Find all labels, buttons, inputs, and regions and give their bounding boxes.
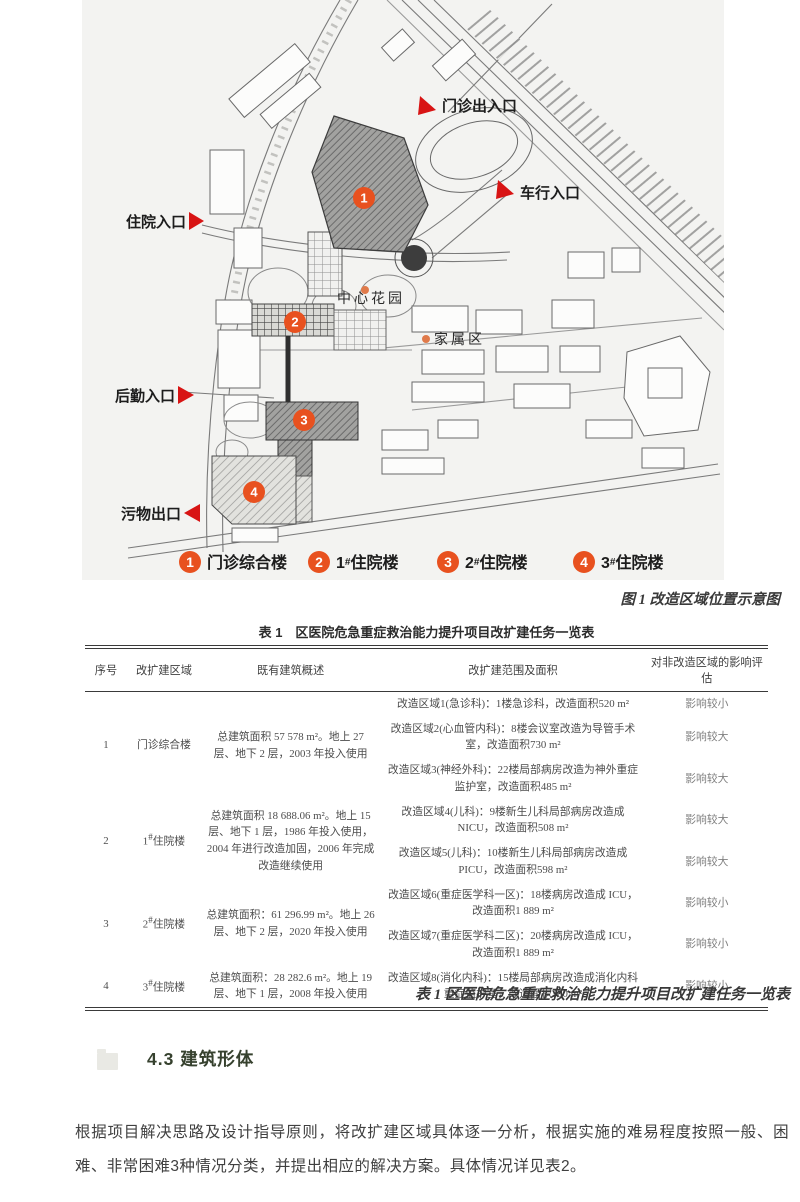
table-header-row: 序号 改扩建区域 既有建筑概述 改扩建范围及面积 对非改造区域的影响评估: [85, 647, 768, 692]
cell-no: 1: [85, 692, 127, 800]
cell-impact: 影响较大: [646, 800, 768, 841]
cell-scope: 改造区域6(重症医学科一区)：18楼病房改造成 ICU，改造面积1 889 m²: [380, 883, 645, 924]
section-title: 4.3 建筑形体: [147, 1046, 254, 1071]
task-table: 序号 改扩建区域 既有建筑概述 改扩建范围及面积 对非改造区域的影响评估 1门诊…: [85, 645, 768, 1011]
figure-caption: 图 1 改造区域位置示意图: [0, 588, 780, 609]
cell-impact: 影响较小: [646, 692, 768, 717]
entrance-label: 住院入口: [126, 213, 186, 231]
entrance-label: 门诊出入口: [442, 97, 517, 115]
cell-impact: 影响较大: [646, 717, 768, 758]
legend-num-1: 1: [186, 554, 194, 570]
legend-num-2: 2: [315, 554, 323, 570]
header-impact: 对非改造区域的影响评估: [646, 647, 768, 692]
entrance-label: 污物出口: [121, 505, 181, 523]
cell-desc: 总建筑面积 57 578 m²。地上 27 层、地下 2 层，2003 年投入使…: [201, 692, 380, 800]
folder-icon: [97, 1053, 118, 1070]
table-row: 32#住院楼总建筑面积：61 296.99 m²。地上 26 层、地下 2 层，…: [85, 883, 768, 924]
marker-1-number: 1: [360, 191, 367, 206]
legend-num-4: 4: [580, 554, 588, 570]
cell-no: 3: [85, 883, 127, 966]
legend-num-3: 3: [444, 554, 452, 570]
table-row: 21#住院楼总建筑面积 18 688.06 m²。地上 15 层、地下 1 层，…: [85, 800, 768, 841]
task-table-body: 1门诊综合楼总建筑面积 57 578 m²。地上 27 层、地下 2 层，200…: [85, 692, 768, 1010]
table-row: 1门诊综合楼总建筑面积 57 578 m²。地上 27 层、地下 2 层，200…: [85, 692, 768, 717]
cell-scope: 改造区域7(重症医学科二区)：20楼病房改造成 ICU，改造面积1 889 m²: [380, 924, 645, 965]
cell-scope: 改造区域4(儿科)：9楼新生儿科局部病房改造成 NICU，改造面积508 m²: [380, 800, 645, 841]
cell-scope: 改造区域1(急诊科)：1楼急诊科，改造面积520 m²: [380, 692, 645, 717]
site-plan-svg: 1 2 3 4 门诊出入口 车行入口 住院入口 后勤入口 污物出口: [82, 0, 724, 588]
building-2-annex: [334, 310, 386, 350]
family-area-label: 家属区: [434, 331, 485, 347]
marker-3-number: 3: [300, 413, 307, 428]
body-paragraph: 根据项目解决思路及设计指导原则，将改扩建区域具体逐一分析，根据实施的难易程度按照…: [75, 1116, 789, 1184]
site-plan-figure: 1 2 3 4 门诊出入口 车行入口 住院入口 后勤入口 污物出口: [82, 0, 724, 588]
document-page: 1 2 3 4 门诊出入口 车行入口 住院入口 后勤入口 污物出口: [0, 0, 800, 1202]
table-caption: 表 1 区医院危急重症救治能力提升项目改扩建任务一览表: [0, 983, 790, 1004]
marker-2-number: 2: [291, 315, 298, 330]
cell-area: 门诊综合楼: [127, 692, 201, 800]
header-desc: 既有建筑概述: [201, 647, 380, 692]
legend-label-1: 门诊综合楼: [207, 553, 287, 572]
cell-area: 2#住院楼: [127, 883, 201, 966]
marker-4-number: 4: [250, 485, 258, 500]
entrance-label: 车行入口: [520, 184, 580, 202]
cell-scope: 改造区域3(神经外科)：22楼局部病房改造为神外重症监护室，改造面积485 m²: [380, 758, 645, 799]
cell-impact: 影响较大: [646, 758, 768, 799]
header-no: 序号: [85, 647, 127, 692]
cell-scope: 改造区域5(儿科)：10楼新生儿科局部病房改造成 PICU，改造面积598 m²: [380, 841, 645, 882]
cell-area: 1#住院楼: [127, 800, 201, 883]
cell-desc: 总建筑面积 18 688.06 m²。地上 15 层、地下 1 层，1986 年…: [201, 800, 380, 883]
section-heading-row: 4.3 建筑形体: [0, 1046, 800, 1076]
family-dot: [422, 335, 430, 343]
header-scope: 改扩建范围及面积: [380, 647, 645, 692]
cell-no: 2: [85, 800, 127, 883]
cell-impact: 影响较小: [646, 924, 768, 965]
header-area: 改扩建区域: [127, 647, 201, 692]
entrance-label: 后勤入口: [115, 387, 175, 405]
cell-impact: 影响较小: [646, 883, 768, 924]
table-title: 表 1 区医院危急重症救治能力提升项目改扩建任务一览表: [85, 622, 768, 641]
center-garden-label: 中心花园: [337, 290, 405, 306]
cell-impact: 影响较大: [646, 841, 768, 882]
cell-desc: 总建筑面积：61 296.99 m²。地上 26 层、地下 2 层，2020 年…: [201, 883, 380, 966]
cell-scope: 改造区域2(心血管内科)：8楼会议室改造为导管手术室，改造面积730 m²: [380, 717, 645, 758]
